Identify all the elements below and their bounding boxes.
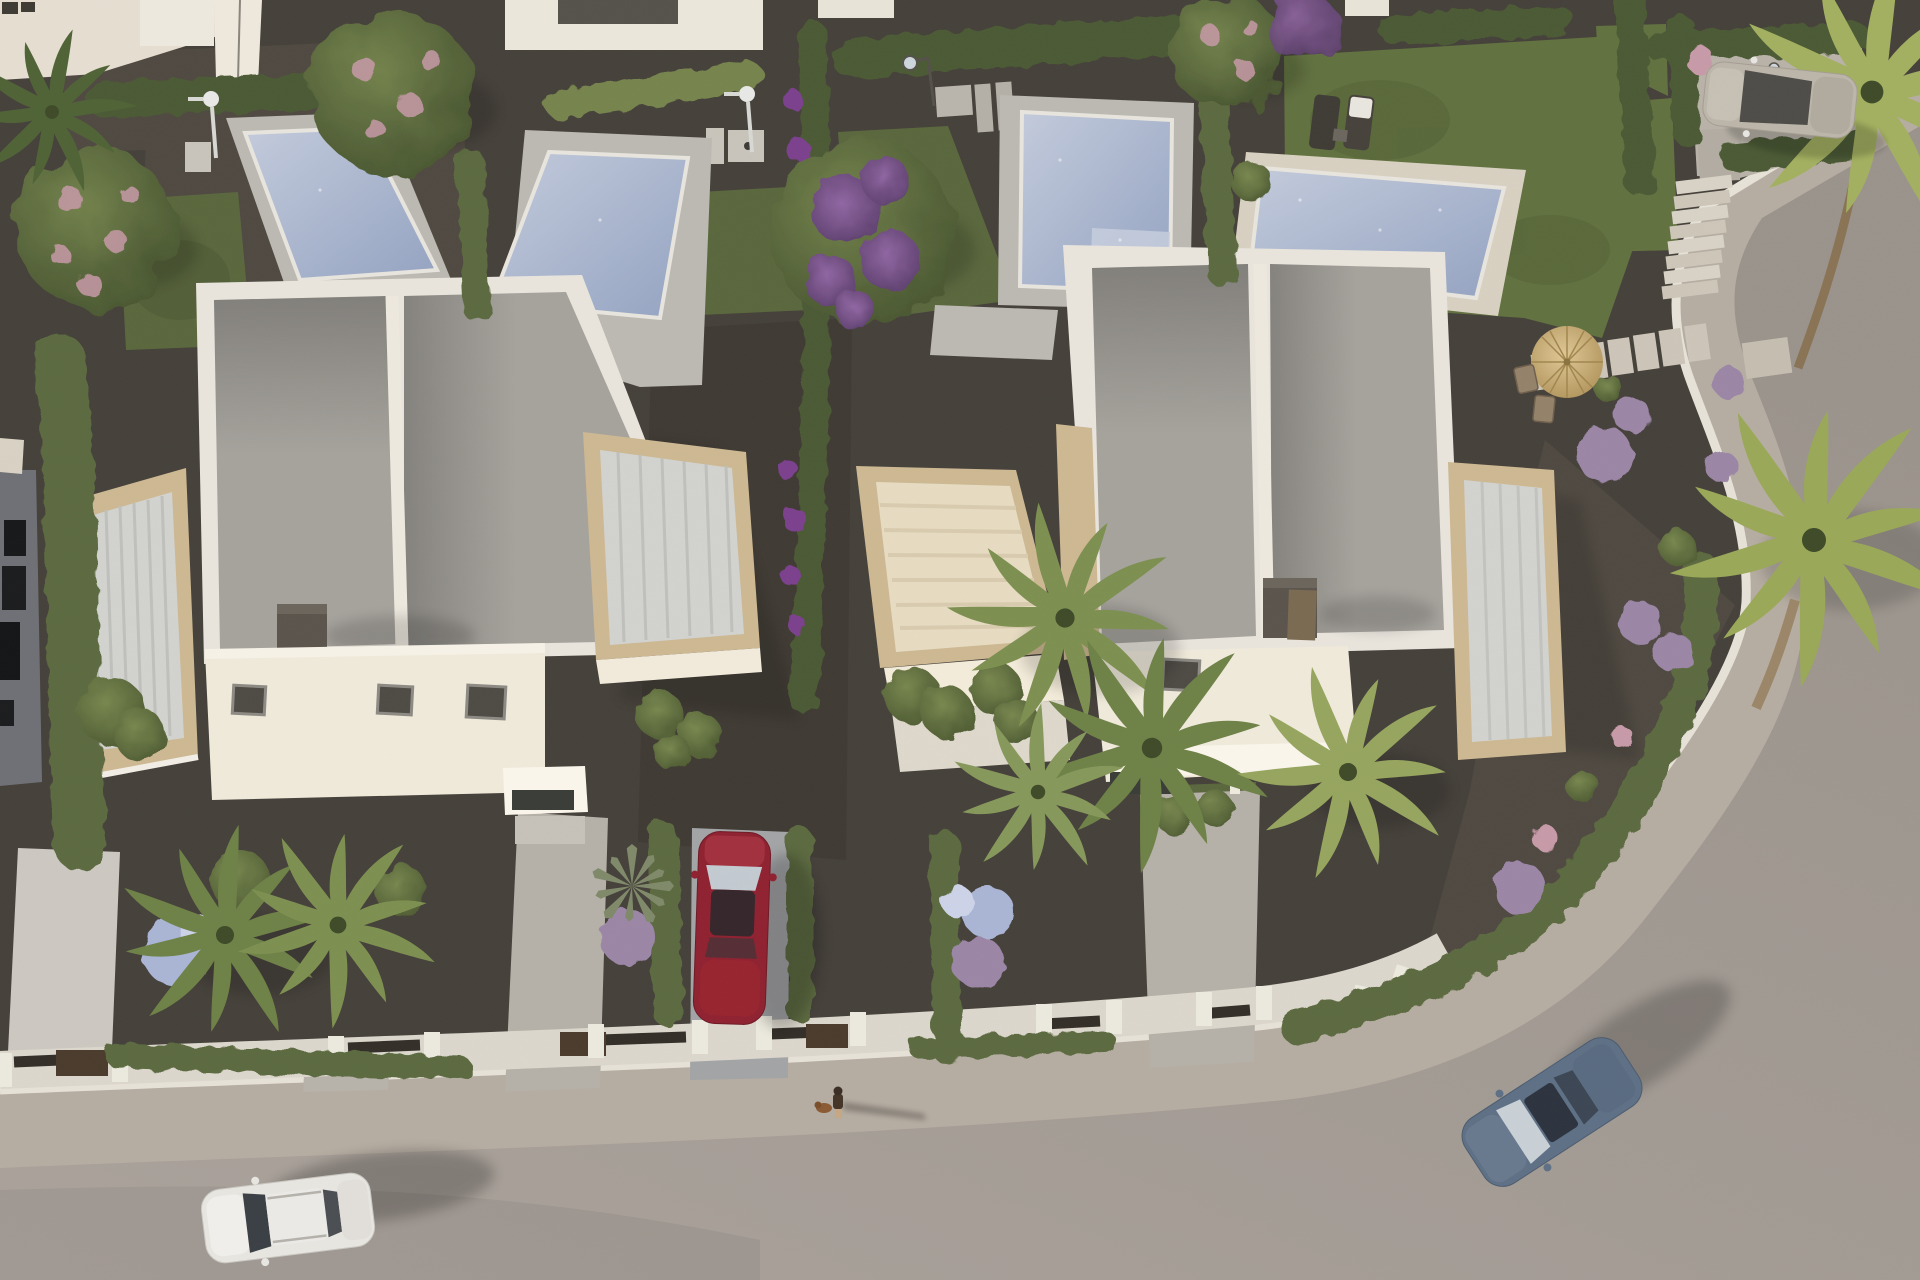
render-canvas <box>0 0 1920 1280</box>
film-grain <box>0 0 1920 1280</box>
